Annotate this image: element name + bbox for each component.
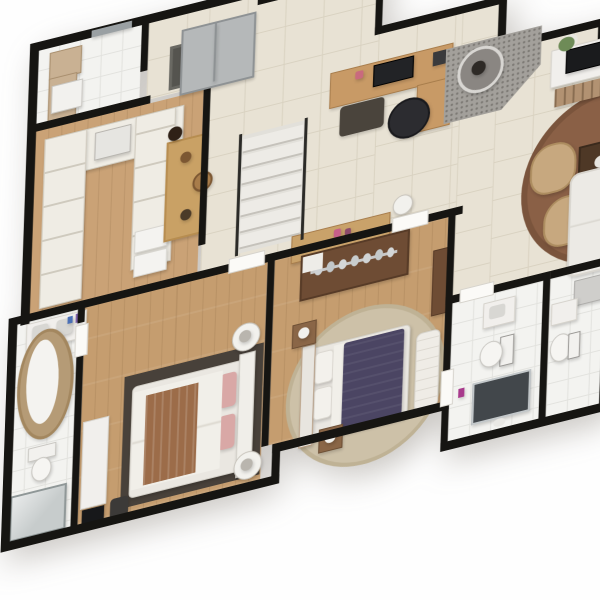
master-sideboard: [80, 416, 109, 510]
white-pillow: [314, 349, 333, 386]
bath3-toilet-tank: [568, 331, 581, 360]
bedroom2-east-door: [440, 368, 454, 407]
wall: [271, 442, 281, 485]
toiletry-blue: [67, 316, 72, 324]
magenta-bottle: [458, 388, 464, 399]
brown-throw: [143, 382, 199, 485]
staircase: [237, 120, 306, 254]
wall: [77, 308, 85, 324]
closet-shelf-west: [39, 129, 87, 309]
floor-plan-render: [0, 0, 600, 600]
master-bath-door: [74, 323, 88, 358]
white-pillow: [313, 385, 332, 422]
quilted-bench: [414, 328, 441, 412]
